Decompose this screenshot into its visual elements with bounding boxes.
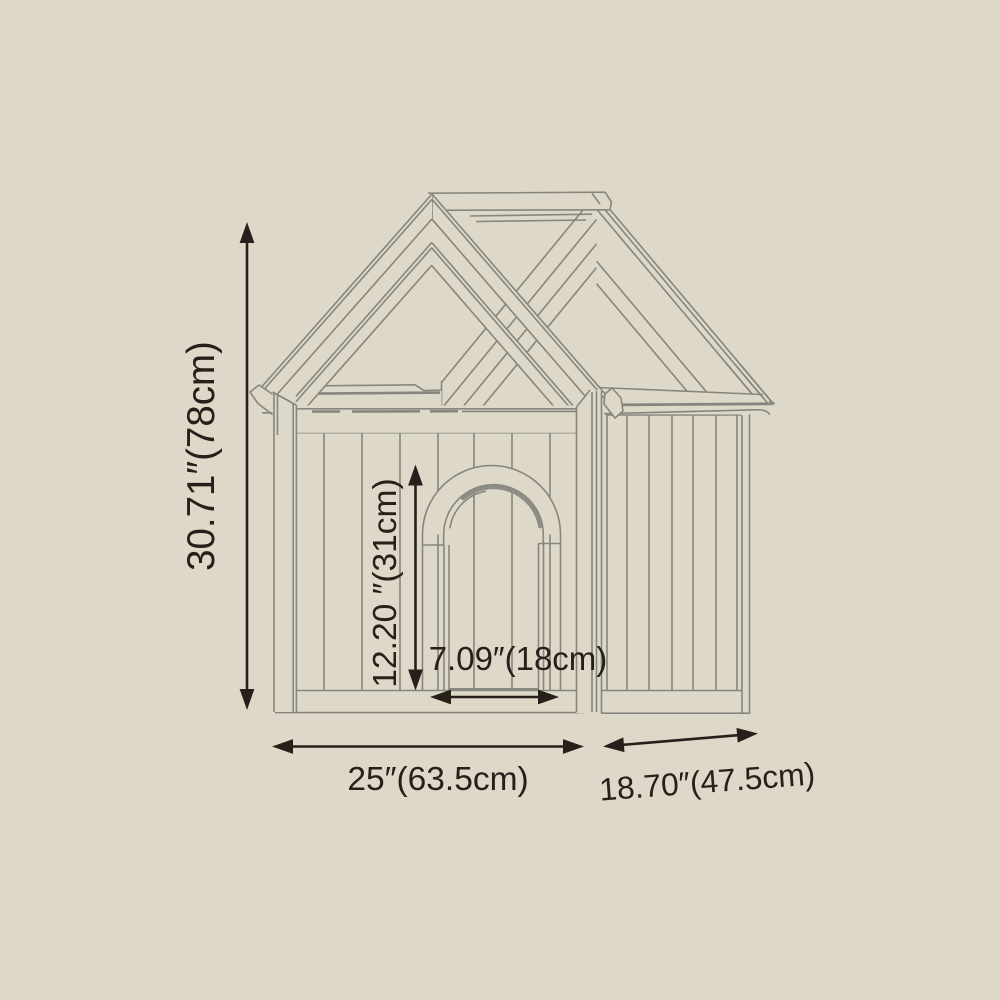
svg-text:12.20 ″(31cm): 12.20 ″(31cm): [367, 478, 404, 687]
svg-text:25″(63.5cm): 25″(63.5cm): [347, 761, 528, 798]
svg-text:30.71″(78cm): 30.71″(78cm): [180, 341, 223, 571]
svg-text:7.09″(18cm): 7.09″(18cm): [429, 640, 608, 677]
